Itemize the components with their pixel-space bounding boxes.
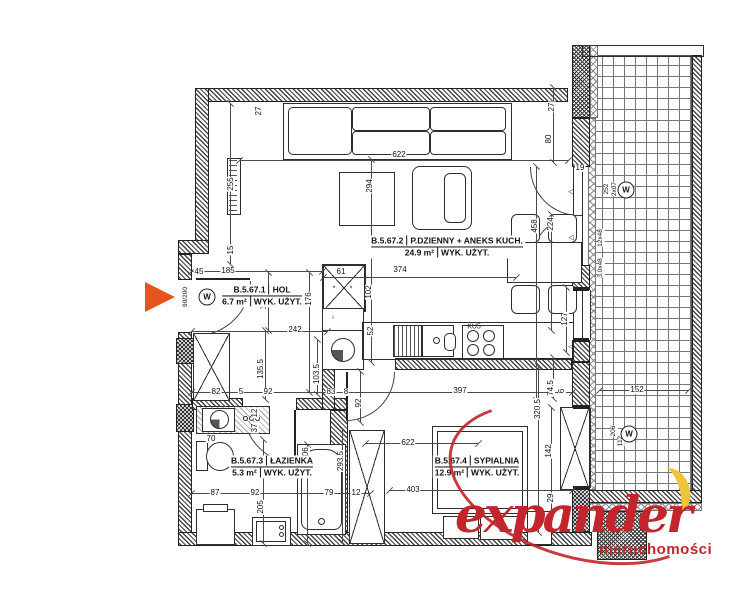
entrance-arrow-icon xyxy=(145,282,175,312)
room-name: ŁAZIENKA xyxy=(266,455,313,465)
dimension-line xyxy=(324,277,516,278)
bath-cabinet xyxy=(196,509,235,545)
annotation-text: ◁ xyxy=(568,189,573,196)
window-symbol-circle: W xyxy=(199,289,216,306)
dimension-label: 103.5 xyxy=(313,363,321,385)
room-id: B.5.67.3 xyxy=(231,455,263,465)
washbasin-tap-dot xyxy=(279,525,284,530)
dimension-label: 12 xyxy=(251,408,259,419)
dimension-label: 294 xyxy=(366,178,374,193)
balcony-bottom-wall xyxy=(577,490,702,503)
dimension-label: 127 xyxy=(561,311,569,326)
room-label-living: B.5.67.2P.DZIENNY + ANEKS KUCH. 24.9 m²W… xyxy=(369,235,525,258)
annotation-text: 206 xyxy=(611,426,618,437)
dimension-label: 320.5 xyxy=(534,398,542,420)
sink-tap xyxy=(444,333,456,351)
room-id: B.5.67.4 xyxy=(435,455,467,465)
radiator-bedroom xyxy=(560,407,590,490)
sofa-seat-left xyxy=(288,107,352,155)
dimension-label: 61 xyxy=(336,268,347,276)
window-symbol-circle: W xyxy=(621,426,638,443)
dresser xyxy=(443,516,479,539)
dimension-label: 87 xyxy=(210,489,221,497)
annotation-text: * xyxy=(333,286,336,293)
room-name: P.DZIENNY + ANEKS KUCH. xyxy=(406,235,523,245)
wall-right-3 xyxy=(572,340,590,362)
room-id: B.5.67.2 xyxy=(371,235,403,245)
dimension-line xyxy=(551,408,552,532)
dimension-line xyxy=(192,392,572,393)
pier-right-bottom xyxy=(572,488,590,532)
annotation-text: 3.0x48 xyxy=(598,258,605,278)
balcony-top-edge xyxy=(582,45,704,57)
dimension-label: 37 xyxy=(251,423,259,434)
dimension-label: 5 xyxy=(238,388,244,396)
dimension-label: 242 xyxy=(287,326,302,334)
dimension-line xyxy=(240,160,568,161)
dimension-label: 8 xyxy=(343,388,349,396)
annotation-text: 252 xyxy=(604,184,611,195)
dimension-label: 52 xyxy=(367,326,375,337)
dimension-label: 80 xyxy=(545,134,553,145)
dimension-label: 12 xyxy=(351,489,362,497)
room-label-hol: B.5.67.1HOL 6.7 m²WYK. UŻYT. xyxy=(220,284,304,307)
dimension-label: 92 xyxy=(355,398,363,409)
room-usage: WYK. UŻYT. xyxy=(437,248,489,258)
dimension-line xyxy=(553,88,554,162)
balcony-tile-grid xyxy=(590,55,692,507)
annotation-text: ◁ xyxy=(568,235,573,242)
burner xyxy=(483,344,495,356)
room-area: 12.9 m² xyxy=(435,468,464,478)
dimension-line xyxy=(551,215,552,330)
dimension-label: 92 xyxy=(263,388,274,396)
annotation-text: 90/200 xyxy=(183,287,190,307)
annotation-text: 12x48 xyxy=(598,229,605,247)
sofa-cushion xyxy=(352,107,430,131)
dimension-label: 255 xyxy=(227,176,235,191)
wall-left-a xyxy=(178,254,192,280)
dimension-label: 403 xyxy=(405,486,420,494)
dimension-label: 224 xyxy=(547,216,555,231)
washing-machine-drum xyxy=(210,410,229,429)
dimension-label: 27 xyxy=(255,106,263,117)
room-area: 5.3 m² xyxy=(232,468,257,478)
dimension-label: 374 xyxy=(392,266,407,274)
balcony-bottom-insulation xyxy=(577,503,702,511)
dimension-label: 185 xyxy=(220,267,235,275)
window-frame-mark xyxy=(573,338,589,342)
annotation-text: KU5 xyxy=(467,324,481,331)
dimension-label: 79 xyxy=(324,489,335,497)
room-area: 24.9 m² xyxy=(405,248,434,258)
wall-left-upper xyxy=(195,88,209,246)
window-frame-mark xyxy=(573,287,589,291)
wall-left-step xyxy=(178,240,209,254)
dimension-label: 622 xyxy=(400,439,415,447)
bedroom-wardrobe xyxy=(349,430,385,544)
dimension-line xyxy=(192,331,327,332)
window-frame-mark xyxy=(573,405,589,409)
room-usage: WYK. UŻYT. xyxy=(260,468,312,478)
dimension-label: 6 xyxy=(558,388,566,394)
corner-carousel xyxy=(331,338,355,362)
dimension-label: 15 xyxy=(227,245,235,256)
dimension-label: 152 xyxy=(629,386,644,394)
armchair-cushion xyxy=(444,173,466,223)
sofa-cushion xyxy=(430,131,506,155)
dimension-label: 27 xyxy=(548,102,556,113)
room-area: 6.7 m² xyxy=(222,297,247,307)
cabinet-knob xyxy=(433,337,440,344)
room-label-bedroom: B.5.67.4SYPIALNIA 12.9 m²WYK. UŻYT. xyxy=(433,455,521,478)
dimension-label: 102 xyxy=(365,284,373,299)
annotation-text: ↓ xyxy=(331,314,335,321)
wall-top xyxy=(195,88,568,102)
room-label-bathroom: B.5.67.3ŁAZIENKA 5.3 m²WYK. UŻYT. xyxy=(229,455,315,478)
room-name: HOL xyxy=(269,284,291,294)
dishwasher xyxy=(393,325,422,357)
bedroom-door-arc xyxy=(346,372,395,421)
dimension-line xyxy=(192,271,322,272)
dimension-label: 293.5 xyxy=(337,450,345,472)
dimension-line xyxy=(342,430,343,542)
dimension-label: 135.5 xyxy=(257,358,265,380)
floor-plan-canvas: B.5.67.1HOL 6.7 m²WYK. UŻYT. B.5.67.2P.D… xyxy=(0,0,738,589)
wall-left-b xyxy=(178,332,192,546)
dimension-line xyxy=(538,367,539,532)
room-usage: WYK. UŻYT. xyxy=(250,297,302,307)
room-name: SYPIALNIA xyxy=(470,455,519,465)
basin-dot xyxy=(243,416,248,421)
bottom-right-pier xyxy=(597,511,647,560)
room-id: B.5.67.1 xyxy=(233,284,265,294)
bathtub-drain xyxy=(318,518,325,525)
dimension-line xyxy=(366,443,478,444)
balcony-outer-wall xyxy=(692,55,702,505)
entrance-door-leaf xyxy=(196,278,250,280)
dimension-label: 83 xyxy=(326,388,337,396)
dimension-label: 142 xyxy=(545,443,553,458)
dimension-label: 397 xyxy=(452,387,467,395)
dimension-label: 92 xyxy=(250,489,261,497)
bath-cabinet-lip xyxy=(203,504,228,512)
dresser xyxy=(480,516,519,540)
dimension-label: 82 xyxy=(211,388,222,396)
burner xyxy=(467,330,479,342)
dimension-label: 205 xyxy=(257,499,265,514)
bedroom-door-leaf xyxy=(346,372,348,420)
annotation-text: ◁ xyxy=(568,344,573,351)
annotation-text: * xyxy=(350,286,353,293)
pier-left-1 xyxy=(176,338,194,364)
dimension-label: 458 xyxy=(531,218,539,233)
burner xyxy=(483,330,495,342)
sofa-cushion xyxy=(430,107,506,131)
washbasin-tap-dot xyxy=(279,532,284,537)
dimension-label: 74.5 xyxy=(547,379,555,397)
wall-right-bedroom xyxy=(572,362,590,408)
dimension-label: 176 xyxy=(305,291,313,306)
room-usage: WYK. UŻYT. xyxy=(467,468,519,478)
dimension-label: 29 xyxy=(547,493,555,504)
window-symbol-circle: W xyxy=(618,182,635,199)
burner xyxy=(467,344,479,356)
dimension-label: 622 xyxy=(391,151,406,159)
wall-right-1 xyxy=(572,118,590,167)
dimension-label: 45 xyxy=(194,268,205,276)
dimension-label: 70 xyxy=(206,435,217,443)
dimension-label: 19 xyxy=(575,164,586,172)
